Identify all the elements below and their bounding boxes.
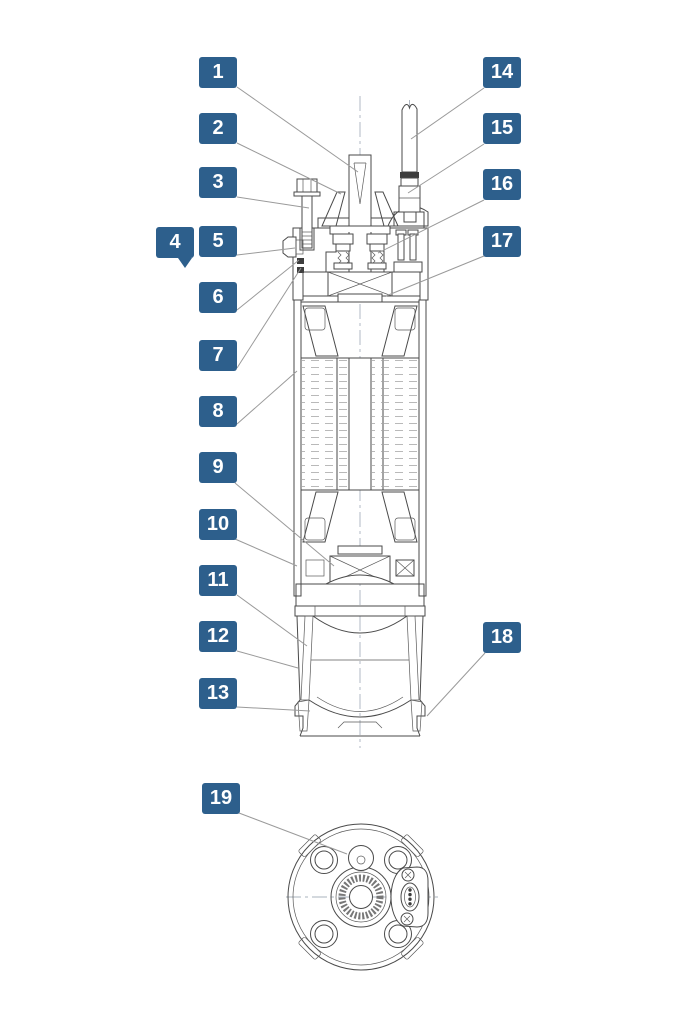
leader-line-9	[235, 483, 334, 566]
leader-line-8	[237, 371, 297, 424]
leader-line-10	[235, 539, 297, 566]
leader-line-11	[237, 595, 307, 646]
diagram-stage: 12345678910111213141516171819	[0, 0, 675, 1024]
leader-line-17	[386, 256, 484, 296]
leader-line-14	[411, 88, 484, 139]
leader-lines-layer	[0, 0, 675, 1024]
leader-line-3	[237, 197, 309, 208]
leader-line-5	[237, 248, 295, 255]
leader-line-18	[427, 653, 485, 716]
leader-line-2	[237, 143, 341, 194]
leader-line-15	[408, 144, 484, 193]
leader-line-1	[237, 87, 358, 172]
leader-line-7	[237, 268, 301, 368]
leader-line-13	[237, 707, 310, 711]
leader-line-19	[239, 813, 347, 854]
leader-line-12	[237, 651, 298, 668]
leader-line-16	[378, 200, 484, 253]
